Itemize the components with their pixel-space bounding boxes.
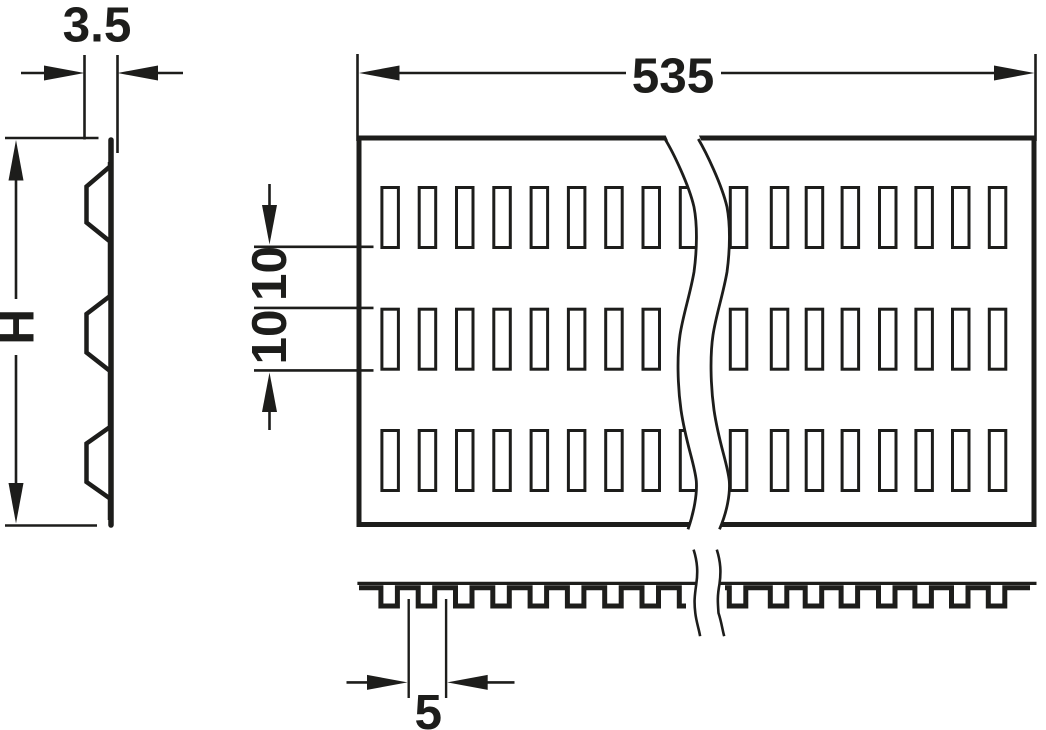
svg-text:H: H (0, 309, 44, 345)
svg-text:5: 5 (415, 685, 443, 730)
svg-text:10: 10 (242, 246, 297, 301)
svg-text:535: 535 (632, 49, 715, 104)
svg-text:10: 10 (242, 309, 297, 364)
svg-text:3.5: 3.5 (63, 0, 132, 53)
